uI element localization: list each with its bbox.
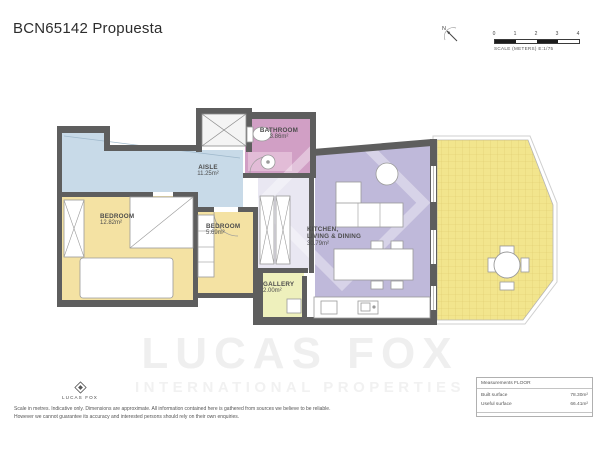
disclaimer: Scale in metres. Indicative only. Dimens…: [14, 406, 354, 422]
windows: [431, 166, 436, 310]
measurements-box: Measurements FLOOR Built surface 78.30m²…: [476, 377, 593, 417]
measurement-value: 66.41m²: [570, 401, 588, 410]
measurement-row: Built surface 78.30m²: [481, 392, 588, 401]
room-label-bedroom1: BEDROOM 12.82m²: [100, 213, 170, 228]
measurement-row: Useful surface 66.41m²: [481, 401, 588, 410]
measurement-label: Built surface: [481, 392, 507, 401]
terrace: [433, 136, 557, 324]
diamond-logo-icon: [74, 381, 87, 394]
measurements-rows: Built surface 78.30m² Useful surface 66.…: [477, 388, 592, 413]
kitchen-counter: [314, 297, 430, 318]
measurement-value: 78.30m²: [570, 392, 588, 401]
disclaimer-line2: However we cannot guarantee its accuracy…: [14, 414, 354, 422]
shower: [261, 155, 275, 169]
room-label-kitchen: KITCHEN, LIVING & DINING 30.79m²: [307, 226, 393, 248]
ventilation-shaft: [202, 114, 246, 146]
lucasfox-logo: LUCAS FOX: [50, 381, 110, 400]
measurements-header: Measurements FLOOR: [477, 380, 592, 388]
floorplan-page: BCN65142 Propuesta N 0 1 2 3 4 SCALE (ME…: [0, 0, 600, 450]
washing-machine: [287, 299, 301, 313]
logo-text: LUCAS FOX: [50, 395, 110, 400]
wardrobe: [64, 200, 84, 257]
room-label-bedroom2: BEDROOM 5.69m²: [206, 223, 266, 238]
room-label-gallery: GALLERY 2.00m²: [263, 281, 313, 296]
side-table: [376, 163, 398, 185]
dresser: [80, 258, 173, 298]
room-label-bathroom: BATHROOM 3.86m²: [248, 127, 310, 142]
room-label-aisle: AISLE 11.25m²: [180, 164, 236, 179]
disclaimer-line1: Scale in metres. Indicative only. Dimens…: [14, 406, 354, 414]
measurement-label: Useful surface: [481, 401, 512, 410]
